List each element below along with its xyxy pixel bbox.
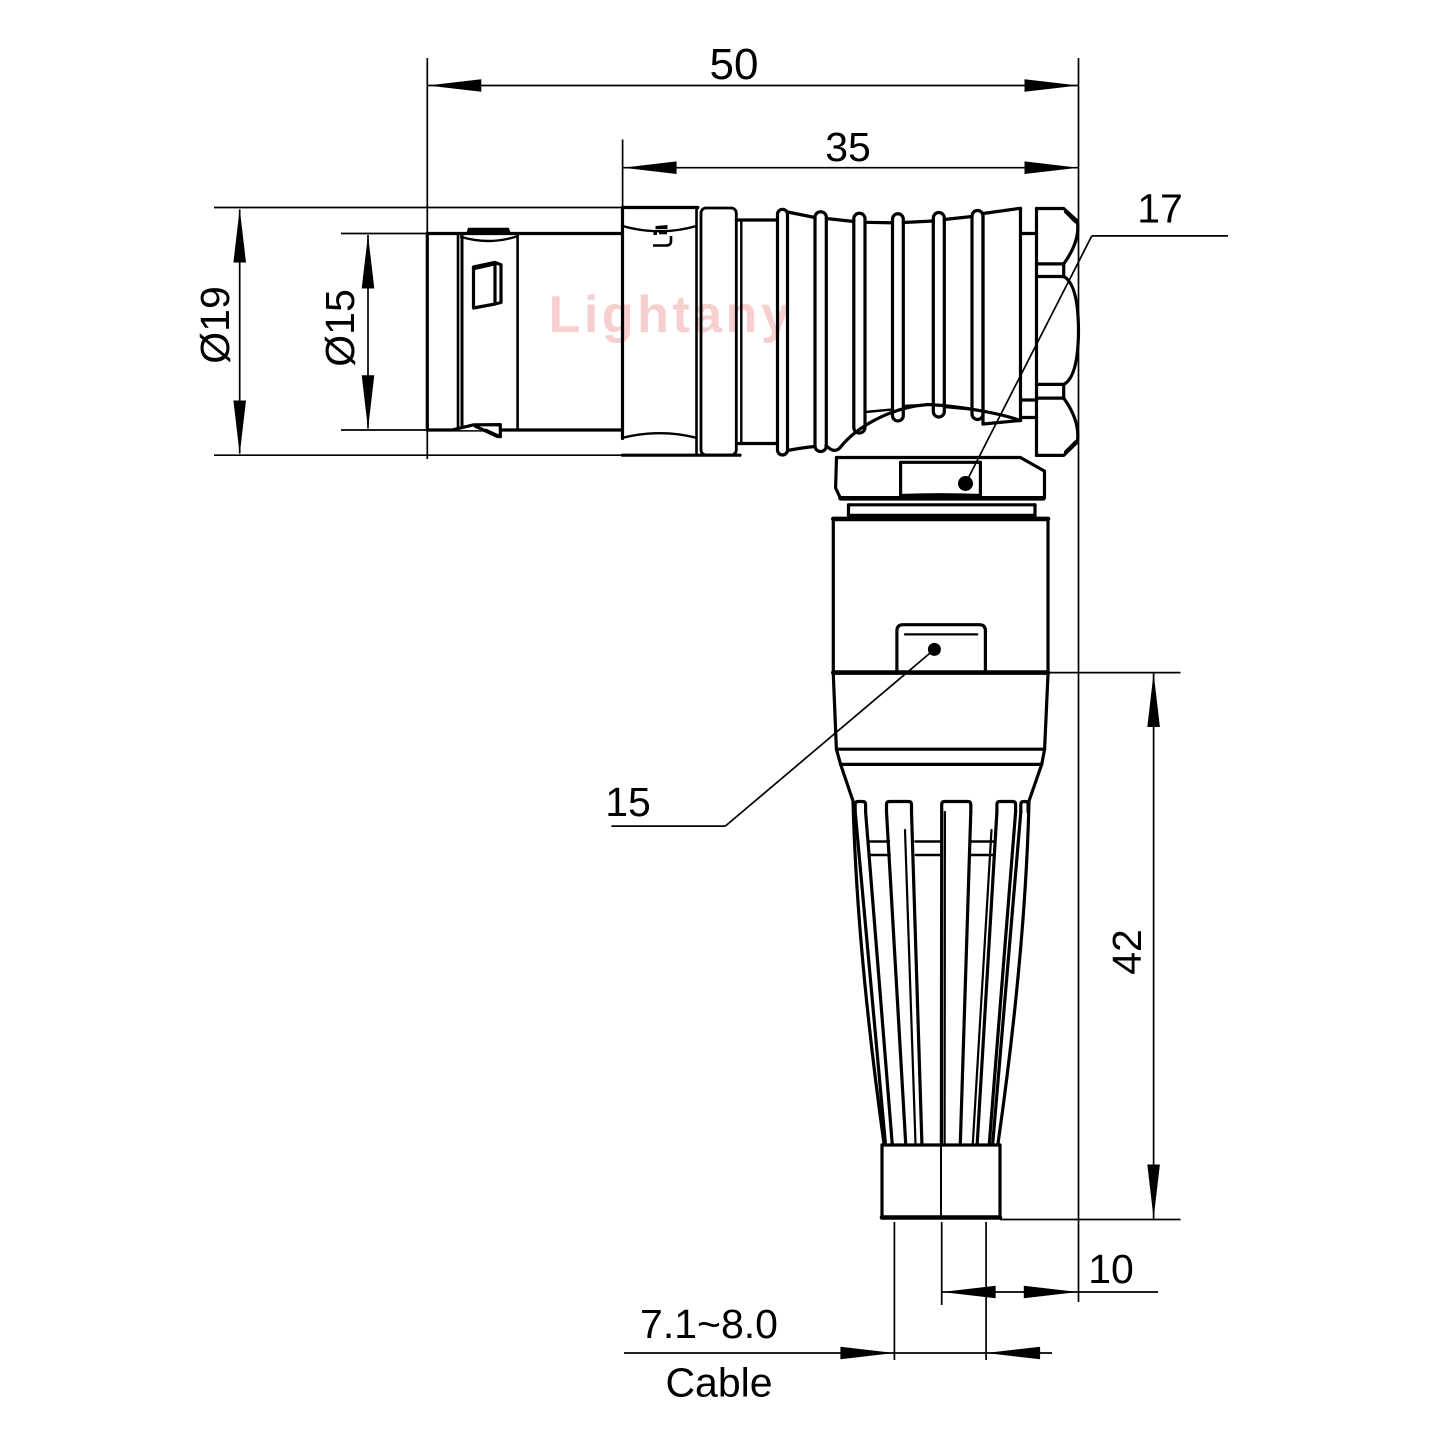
svg-text:Ø15: Ø15 (317, 289, 363, 367)
svg-text:Ø19: Ø19 (192, 286, 238, 364)
svg-text:35: 35 (825, 124, 871, 170)
svg-text:50: 50 (710, 40, 759, 89)
svg-text:10: 10 (1088, 1246, 1134, 1292)
svg-text:Lightany: Lightany (549, 286, 794, 344)
svg-text:42: 42 (1104, 929, 1150, 975)
svg-text:Cable: Cable (665, 1360, 772, 1406)
svg-text:7.1~8.0: 7.1~8.0 (640, 1301, 778, 1347)
svg-text:15: 15 (605, 779, 651, 825)
svg-text:17: 17 (1137, 186, 1183, 232)
